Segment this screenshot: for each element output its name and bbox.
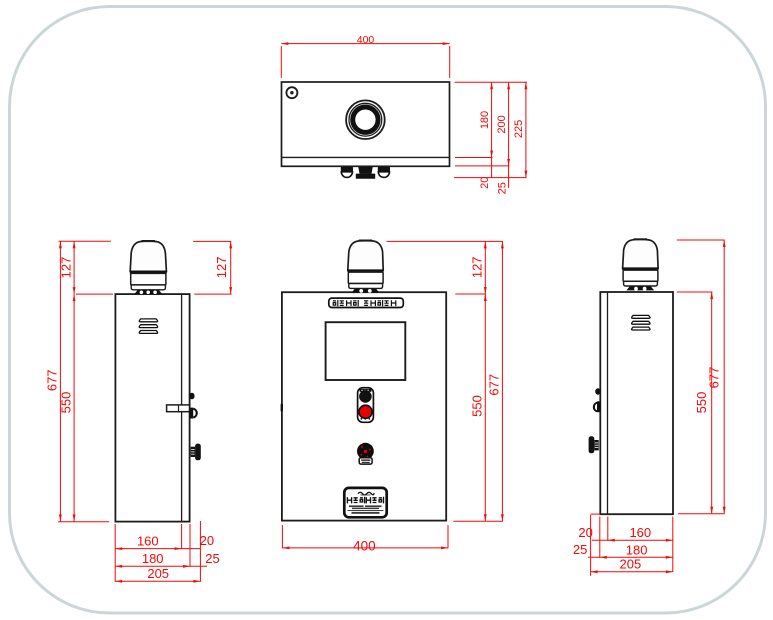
svg-text:205: 205 [620, 557, 642, 572]
svg-text:25: 25 [205, 551, 219, 566]
svg-text:400: 400 [357, 34, 375, 46]
svg-text:25: 25 [573, 542, 587, 557]
svg-text:127: 127 [58, 257, 73, 279]
svg-text:550: 550 [58, 392, 73, 414]
svg-text:400: 400 [353, 538, 376, 553]
svg-text:205: 205 [147, 566, 169, 581]
svg-text:180: 180 [479, 111, 491, 129]
svg-text:160: 160 [629, 525, 651, 540]
svg-text:677: 677 [707, 367, 722, 389]
svg-text:550: 550 [694, 392, 709, 414]
svg-text:127: 127 [214, 257, 229, 279]
svg-text:20: 20 [479, 177, 491, 189]
svg-text:20: 20 [200, 533, 214, 548]
svg-text:180: 180 [142, 551, 164, 566]
svg-text:160: 160 [137, 533, 159, 548]
svg-text:677: 677 [45, 369, 60, 391]
svg-text:20: 20 [578, 525, 592, 540]
svg-text:127: 127 [470, 256, 485, 278]
svg-text:677: 677 [487, 374, 502, 396]
svg-text:180: 180 [626, 542, 648, 557]
svg-text:25: 25 [496, 182, 508, 194]
svg-text:550: 550 [470, 395, 485, 417]
svg-text:225: 225 [513, 120, 525, 138]
svg-text:200: 200 [496, 115, 508, 133]
